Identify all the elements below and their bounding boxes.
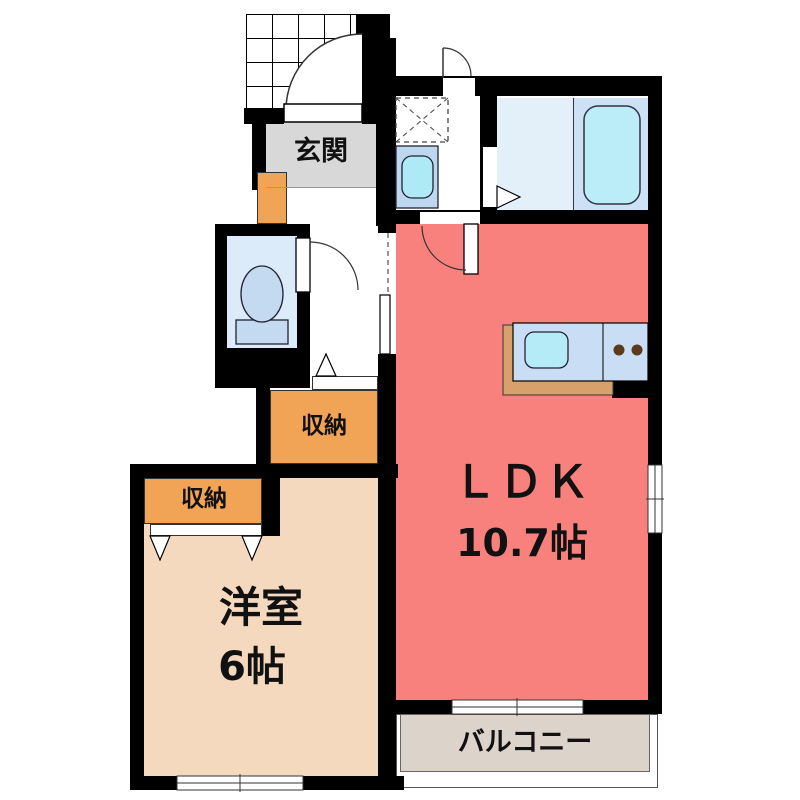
hall-closet-marker bbox=[316, 354, 336, 376]
bath-door-marker bbox=[497, 186, 520, 208]
entry-door-swing-area bbox=[286, 34, 362, 110]
room-closet-marker bbox=[150, 536, 170, 560]
hall-storage-label: 収納 bbox=[270, 414, 378, 438]
floor-plan: 玄関 収納 収納 ＬＤＫ 10.7帖 洋室 6帖 バルコニー bbox=[0, 0, 800, 800]
fixtures-layer bbox=[0, 0, 800, 800]
ldk-door-leaf bbox=[464, 224, 478, 274]
ldk-size-label: 10.7帖 bbox=[396, 524, 648, 564]
toilet-tank bbox=[236, 320, 288, 344]
toilet-door-arc bbox=[310, 242, 358, 290]
entry-door-leaf bbox=[284, 104, 362, 122]
kitchen-sink bbox=[525, 332, 568, 368]
ldk-door-arc bbox=[422, 226, 466, 270]
balcony-label: バルコニー bbox=[400, 729, 650, 757]
bathtub bbox=[584, 106, 640, 204]
burner-icon bbox=[614, 345, 625, 356]
room-storage-label: 収納 bbox=[146, 487, 262, 511]
sliding-door-panel bbox=[380, 295, 390, 354]
room-closet-marker bbox=[242, 536, 262, 560]
window-ldk-balcony bbox=[452, 698, 583, 716]
window-ldk-right bbox=[646, 465, 664, 533]
western-room-size-label: 6帖 bbox=[144, 646, 360, 688]
burner-icon bbox=[632, 345, 643, 356]
western-room-name-label: 洋室 bbox=[144, 586, 378, 630]
toilet-door-leaf bbox=[296, 238, 310, 292]
washroom-door-arc bbox=[443, 48, 471, 76]
vanity-sink-bowl bbox=[402, 156, 433, 198]
ldk-name-label: ＬＤＫ bbox=[396, 460, 648, 506]
entrance-label: 玄関 bbox=[266, 138, 376, 166]
toilet-bowl bbox=[241, 266, 283, 322]
window-western-room bbox=[177, 774, 303, 792]
